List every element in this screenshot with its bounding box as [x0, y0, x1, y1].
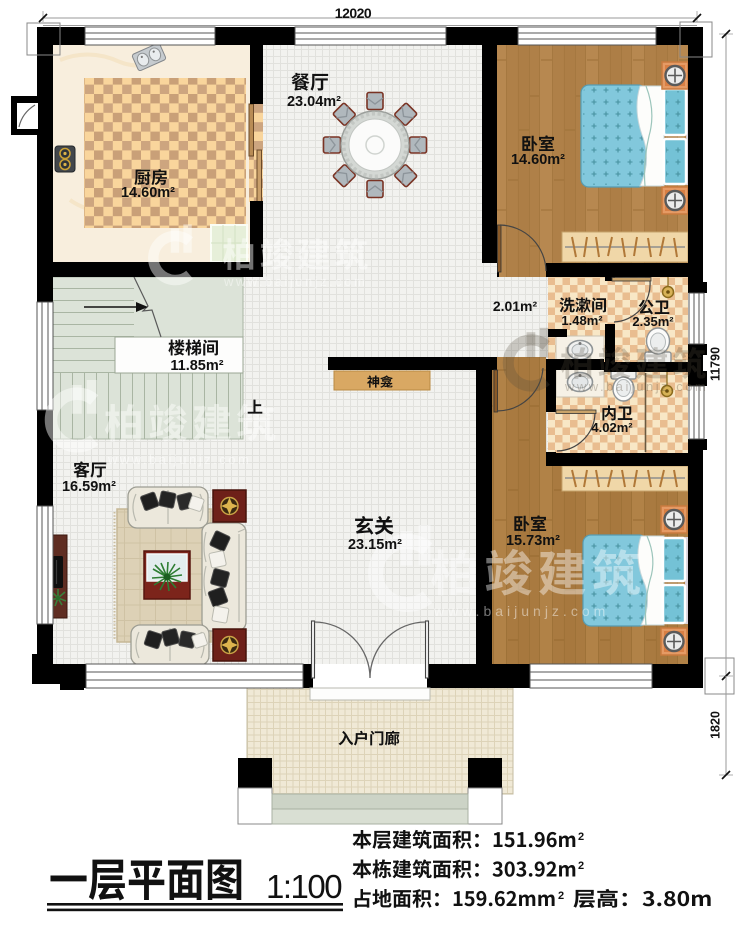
svg-text:11.85m²: 11.85m²: [170, 358, 223, 374]
svg-text:15.73m²: 15.73m²: [506, 533, 560, 549]
svg-text:www.baijunjz.com: www.baijunjz.com: [107, 452, 251, 467]
svg-text:2: 2: [558, 890, 564, 902]
svg-text:12020: 12020: [335, 5, 372, 21]
svg-text:23.04m²: 23.04m²: [287, 94, 341, 110]
svg-text:1.48m²: 1.48m²: [561, 313, 603, 328]
svg-text:www.baijunjz.com: www.baijunjz.com: [564, 379, 708, 394]
svg-text:2: 2: [578, 860, 584, 872]
svg-text:4.02m²: 4.02m²: [591, 420, 633, 435]
svg-text:www.baijunjz.com: www.baijunjz.com: [223, 274, 367, 289]
svg-text:2.35m²: 2.35m²: [632, 314, 674, 329]
svg-text:11790: 11790: [709, 347, 723, 381]
svg-text:14.60m²: 14.60m²: [511, 152, 565, 168]
svg-text:16.59m²: 16.59m²: [62, 479, 116, 495]
svg-text:14.60m²: 14.60m²: [121, 185, 175, 201]
svg-text:23.15m²: 23.15m²: [348, 537, 402, 553]
svg-text:1820: 1820: [709, 711, 723, 739]
svg-text:2: 2: [578, 831, 584, 843]
svg-text:1:100: 1:100: [266, 868, 342, 905]
svg-text:www.baijunjz.com: www.baijunjz.com: [433, 603, 609, 619]
svg-text:2.01m²: 2.01m²: [493, 298, 538, 314]
